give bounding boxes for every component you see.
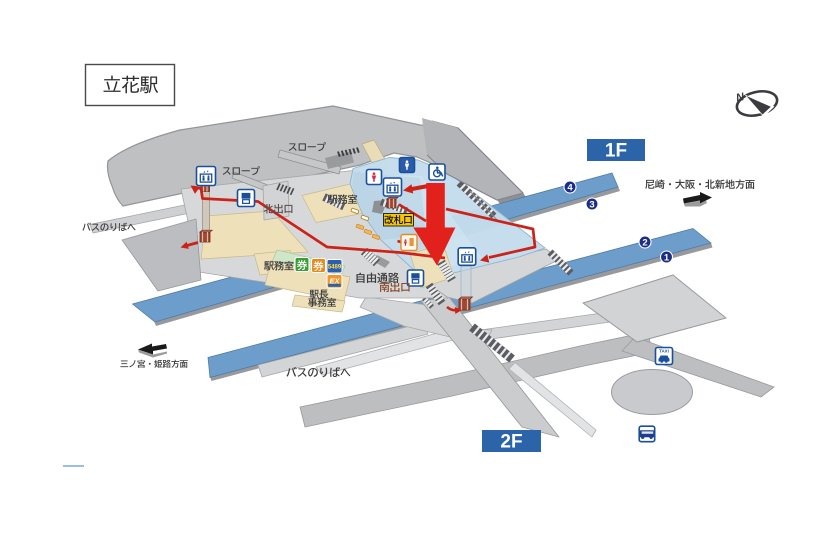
svg-text:3: 3: [589, 199, 594, 210]
svg-text:1: 1: [664, 252, 670, 263]
svg-text:1F: 1F: [605, 141, 627, 162]
svg-text:5489: 5489: [328, 265, 342, 271]
svg-text:4: 4: [567, 182, 573, 193]
svg-text:TAXI: TAXI: [659, 349, 669, 354]
svg-text:2: 2: [642, 237, 647, 248]
svg-text:2F: 2F: [500, 432, 522, 453]
